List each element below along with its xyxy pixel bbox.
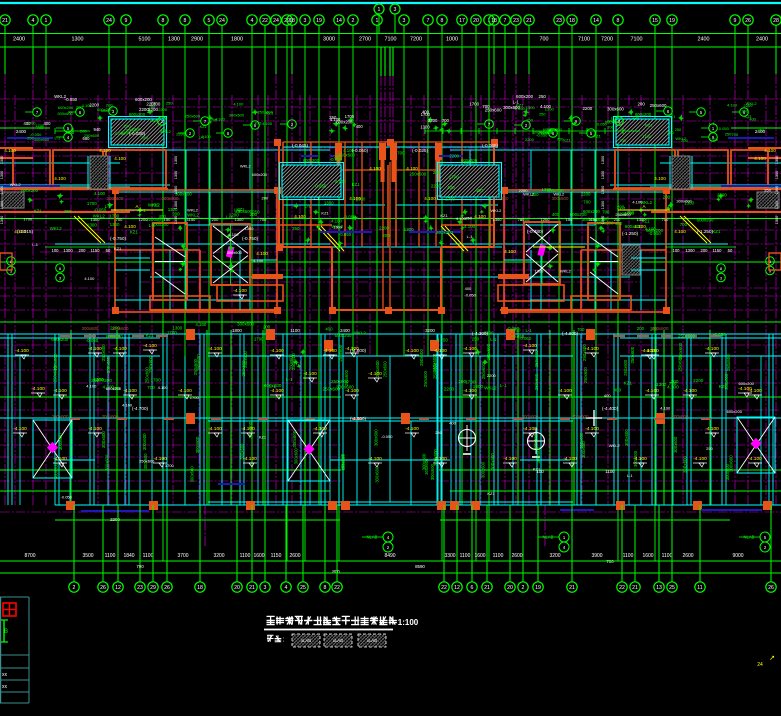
- svg-text:L-1: L-1: [139, 208, 146, 213]
- svg-text:150: 150: [566, 217, 573, 222]
- svg-text:250x600: 250x600: [432, 362, 437, 379]
- svg-text:2600: 2600: [682, 553, 693, 559]
- svg-text:1: 1: [376, 18, 379, 24]
- svg-text:1300: 1300: [775, 216, 779, 224]
- svg-text:2200: 2200: [379, 225, 389, 230]
- svg-text:3: 3: [394, 7, 397, 13]
- svg-text:200: 200: [607, 125, 614, 130]
- svg-text:19: 19: [535, 585, 541, 591]
- svg-text:-4.100: -4.100: [463, 388, 477, 394]
- svg-text:KZ1: KZ1: [130, 230, 139, 235]
- svg-text:300x600: 300x600: [142, 433, 147, 450]
- svg-text:700: 700: [260, 217, 267, 222]
- svg-text:1300: 1300: [87, 223, 97, 228]
- svg-text:600x200: 600x200: [264, 383, 282, 388]
- svg-text:300x600: 300x600: [430, 463, 435, 480]
- svg-text:20: 20: [507, 585, 513, 591]
- svg-text:200: 200: [663, 195, 671, 200]
- svg-text:1300: 1300: [174, 156, 178, 164]
- svg-text:4.100: 4.100: [660, 405, 671, 410]
- svg-text:-4.100: -4.100: [113, 346, 127, 352]
- svg-text:400: 400: [552, 212, 560, 217]
- svg-text:1300: 1300: [72, 37, 84, 43]
- svg-text:1100: 1100: [460, 553, 471, 559]
- svg-text:300x600: 300x600: [227, 250, 243, 255]
- svg-text:19: 19: [316, 18, 322, 24]
- svg-text:400: 400: [24, 121, 32, 126]
- svg-text:1700: 1700: [151, 101, 161, 106]
- svg-text:KZ1: KZ1: [259, 434, 267, 439]
- svg-text:2400: 2400: [16, 129, 27, 134]
- svg-text:1700: 1700: [511, 327, 521, 332]
- svg-text:-0.050: -0.050: [65, 97, 78, 102]
- svg-text:300x600: 300x600: [373, 429, 378, 446]
- svg-text:300x600: 300x600: [492, 196, 509, 201]
- svg-text:600x200: 600x200: [335, 333, 352, 338]
- svg-text:-4.100: -4.100: [233, 288, 247, 294]
- svg-text:4.100: 4.100: [474, 214, 486, 219]
- svg-text:-0.050: -0.050: [713, 332, 726, 337]
- svg-text:1600: 1600: [474, 553, 485, 559]
- svg-text:250x600: 250x600: [486, 343, 491, 360]
- svg-text:1300: 1300: [420, 125, 430, 130]
- svg-text:2600: 2600: [289, 553, 300, 559]
- svg-text:400: 400: [325, 327, 333, 332]
- svg-text:300x600: 300x600: [294, 448, 299, 465]
- svg-text:-4.100: -4.100: [53, 456, 67, 462]
- svg-text:KZ1: KZ1: [624, 381, 633, 386]
- svg-text:1100: 1100: [662, 553, 673, 559]
- svg-text:-4.100: -4.100: [15, 348, 29, 354]
- svg-text:400: 400: [356, 124, 364, 129]
- svg-text:-4.100: -4.100: [31, 386, 45, 392]
- svg-text:600x200: 600x200: [697, 218, 714, 223]
- svg-text:xLAB: xLAB: [367, 638, 377, 643]
- svg-text:200: 200: [104, 378, 112, 383]
- svg-text:11: 11: [697, 585, 702, 591]
- svg-text:250x600: 250x600: [145, 367, 150, 384]
- svg-text:50: 50: [728, 248, 733, 253]
- svg-text:3700: 3700: [177, 553, 188, 559]
- svg-text:600x200: 600x200: [51, 337, 68, 342]
- svg-text:L-1: L-1: [669, 114, 676, 119]
- svg-text:200: 200: [79, 248, 87, 253]
- svg-text:300x600: 300x600: [52, 414, 69, 419]
- svg-text:300x600: 300x600: [58, 433, 63, 450]
- svg-text:3: 3: [264, 585, 267, 591]
- svg-text:1700: 1700: [449, 175, 459, 180]
- svg-text:200: 200: [261, 195, 268, 200]
- svg-text:3900: 3900: [591, 553, 602, 559]
- svg-text:1300: 1300: [174, 201, 178, 209]
- svg-text:2200: 2200: [519, 188, 529, 193]
- svg-text:200: 200: [382, 233, 390, 238]
- svg-text:200: 200: [212, 217, 219, 222]
- svg-text:4.100: 4.100: [215, 117, 226, 122]
- svg-text:26: 26: [100, 585, 106, 591]
- svg-text:700: 700: [397, 150, 405, 155]
- svg-text:250: 250: [539, 112, 546, 117]
- svg-text:3200: 3200: [425, 328, 435, 333]
- svg-text:2400: 2400: [13, 37, 25, 43]
- svg-text:600x200: 600x200: [252, 172, 268, 177]
- svg-text:1840: 1840: [123, 553, 134, 559]
- svg-text:700: 700: [619, 138, 626, 143]
- svg-text:KZ1: KZ1: [563, 137, 571, 142]
- svg-text:700: 700: [662, 217, 669, 222]
- svg-text:18: 18: [197, 585, 203, 591]
- svg-text:xx: xx: [2, 672, 8, 678]
- svg-text:-4.100: -4.100: [405, 348, 419, 354]
- svg-text:4.100: 4.100: [256, 251, 268, 256]
- svg-text:1100: 1100: [623, 553, 634, 559]
- svg-text:400: 400: [422, 109, 430, 114]
- svg-text:250: 250: [27, 135, 34, 140]
- svg-text:KZ1: KZ1: [321, 211, 329, 216]
- svg-text:250x600: 250x600: [289, 353, 294, 370]
- svg-text:xLAB: xLAB: [301, 638, 311, 643]
- svg-text:18: 18: [491, 18, 497, 24]
- svg-text:NLAB: NLAB: [744, 535, 755, 540]
- svg-text:-4.100: -4.100: [368, 456, 382, 462]
- svg-text:18: 18: [289, 18, 295, 24]
- svg-text:300x600: 300x600: [579, 432, 584, 449]
- svg-text:2400: 2400: [756, 37, 768, 43]
- svg-text:400: 400: [44, 121, 52, 126]
- svg-text:400: 400: [67, 130, 74, 135]
- svg-text:2: 2: [522, 585, 525, 591]
- svg-text:2200: 2200: [717, 193, 727, 198]
- svg-text:4.100: 4.100: [122, 403, 133, 408]
- svg-text:-4.100: -4.100: [585, 346, 599, 352]
- svg-text:1700: 1700: [254, 337, 264, 342]
- svg-text:600x200: 600x200: [739, 381, 755, 386]
- svg-text:600x200: 600x200: [516, 94, 533, 99]
- svg-text:-4.100: -4.100: [633, 456, 647, 462]
- svg-text:23: 23: [137, 585, 143, 591]
- svg-text:300x600: 300x600: [572, 414, 589, 419]
- svg-text:1300: 1300: [174, 186, 178, 194]
- svg-text:1100: 1100: [143, 553, 154, 559]
- svg-text:4.100: 4.100: [754, 156, 766, 161]
- svg-text:KZ1: KZ1: [645, 122, 653, 127]
- svg-text:-4.100: -4.100: [153, 456, 167, 462]
- svg-text:(-4.800): (-4.800): [350, 348, 367, 353]
- svg-text:2400: 2400: [698, 37, 710, 43]
- svg-text:250: 250: [141, 135, 148, 140]
- svg-text:4.100: 4.100: [674, 229, 686, 234]
- svg-text:4.100: 4.100: [262, 121, 273, 126]
- svg-text:(-4.300): (-4.300): [472, 331, 489, 336]
- svg-text:700: 700: [557, 136, 564, 141]
- svg-text:2200: 2200: [487, 373, 497, 378]
- svg-text:200: 200: [671, 379, 679, 384]
- svg-text:(-0.045): (-0.045): [292, 143, 309, 148]
- svg-text:250x600: 250x600: [193, 358, 198, 375]
- svg-text:-4.100: -4.100: [693, 456, 707, 462]
- svg-text:300x600: 300x600: [162, 196, 179, 201]
- svg-text:2600: 2600: [511, 553, 522, 559]
- svg-text:20: 20: [473, 18, 479, 24]
- svg-text:250x600: 250x600: [106, 356, 111, 373]
- svg-text:20: 20: [234, 585, 240, 591]
- svg-text:4.100: 4.100: [86, 383, 97, 388]
- svg-text:WKL2: WKL2: [10, 182, 22, 187]
- svg-text:2400: 2400: [340, 328, 350, 333]
- svg-text:9: 9: [734, 18, 737, 24]
- svg-text:250x600: 250x600: [623, 359, 628, 376]
- svg-text:250x600: 250x600: [185, 113, 201, 118]
- svg-text:3200: 3200: [549, 553, 560, 559]
- svg-text:(-0.050): (-0.050): [352, 148, 369, 153]
- svg-text:1100: 1100: [605, 469, 615, 474]
- svg-text:1300: 1300: [493, 217, 503, 222]
- svg-text:300x600: 300x600: [105, 454, 110, 471]
- svg-text:1100: 1100: [240, 553, 251, 559]
- svg-text:-4.100: -4.100: [208, 426, 222, 432]
- svg-text:-4.100: -4.100: [270, 348, 284, 354]
- svg-text:1700: 1700: [87, 201, 97, 206]
- svg-text:14: 14: [593, 18, 599, 24]
- svg-text:4.100: 4.100: [158, 385, 169, 390]
- svg-text:300x600: 300x600: [672, 414, 689, 419]
- svg-text:21: 21: [2, 18, 8, 24]
- svg-text:L-1: L-1: [199, 135, 206, 140]
- svg-text:7: 7: [427, 18, 430, 24]
- svg-text:700: 700: [680, 222, 688, 227]
- svg-text:1300: 1300: [174, 171, 178, 179]
- svg-text:xx: xx: [2, 684, 8, 690]
- svg-text:WKL2: WKL2: [354, 330, 367, 335]
- svg-text:200: 200: [637, 101, 645, 106]
- svg-text:600x200: 600x200: [129, 112, 146, 117]
- svg-text:-0.050: -0.050: [114, 131, 126, 136]
- svg-text:-4.100: -4.100: [748, 456, 762, 462]
- svg-text:200: 200: [637, 326, 645, 331]
- svg-text:-4.100: -4.100: [123, 388, 137, 394]
- svg-text:21: 21: [632, 585, 638, 591]
- svg-text:KZ1: KZ1: [266, 110, 274, 115]
- svg-text:300x600: 300x600: [195, 436, 200, 453]
- svg-text:26: 26: [768, 585, 774, 591]
- svg-text:23: 23: [513, 18, 519, 24]
- svg-text:7200: 7200: [410, 37, 422, 43]
- svg-text:200: 200: [263, 325, 271, 330]
- svg-text:250: 250: [166, 101, 173, 106]
- svg-text:200: 200: [614, 217, 621, 222]
- svg-text:700: 700: [442, 118, 450, 123]
- svg-text:2200: 2200: [581, 191, 591, 196]
- svg-text:300x600: 300x600: [552, 196, 569, 201]
- svg-text:300x600: 300x600: [424, 458, 429, 475]
- svg-text:250x600: 250x600: [650, 103, 667, 108]
- svg-text:300x600: 300x600: [229, 113, 245, 118]
- svg-text:-4.100: -4.100: [523, 426, 537, 432]
- svg-text:2200: 2200: [693, 378, 704, 383]
- svg-text:4.100: 4.100: [504, 249, 516, 254]
- svg-text:400: 400: [449, 421, 456, 426]
- svg-text:L-1: L-1: [611, 116, 618, 121]
- svg-text:L-1: L-1: [286, 377, 293, 382]
- svg-text:4.100: 4.100: [99, 148, 111, 153]
- svg-text:2: 2: [73, 585, 76, 591]
- svg-text:250: 250: [764, 187, 771, 192]
- svg-text:700: 700: [518, 217, 525, 222]
- svg-text:200: 200: [681, 138, 688, 143]
- svg-text:400: 400: [613, 387, 621, 392]
- svg-text:L-1: L-1: [627, 473, 634, 478]
- svg-text:1150: 1150: [187, 217, 196, 222]
- svg-text:300x600: 300x600: [490, 453, 495, 470]
- svg-text:9: 9: [125, 18, 128, 24]
- svg-text:1700: 1700: [23, 217, 33, 222]
- svg-text:24: 24: [757, 662, 763, 668]
- svg-text:1300: 1300: [709, 137, 719, 142]
- svg-text:8490: 8490: [384, 553, 395, 559]
- svg-text:-0.050: -0.050: [512, 334, 525, 339]
- svg-text:8700: 8700: [24, 553, 35, 559]
- svg-text:(-0.045): (-0.045): [482, 143, 499, 148]
- svg-text:1300: 1300: [775, 201, 779, 209]
- svg-text:-4.100: -4.100: [241, 426, 255, 432]
- svg-text:250x600: 250x600: [630, 346, 635, 363]
- svg-text:WKL2: WKL2: [50, 226, 63, 231]
- svg-text:250: 250: [741, 109, 748, 114]
- svg-text:-4.100: -4.100: [405, 426, 419, 432]
- svg-text:2200: 2200: [148, 107, 158, 112]
- svg-text:WKL2: WKL2: [187, 207, 199, 212]
- svg-text:KZ1: KZ1: [533, 467, 541, 472]
- svg-text:600x200: 600x200: [106, 334, 123, 339]
- svg-text:250x600: 250x600: [139, 458, 155, 463]
- svg-text:4: 4: [251, 18, 254, 24]
- svg-text:1300: 1300: [601, 156, 605, 164]
- svg-text:250: 250: [252, 209, 260, 214]
- svg-text:940: 940: [94, 127, 102, 132]
- svg-text:250: 250: [667, 130, 674, 135]
- svg-text:(-1.250): (-1.250): [622, 231, 639, 236]
- svg-text:KZ1: KZ1: [146, 333, 155, 338]
- svg-text:-0.050: -0.050: [381, 434, 393, 439]
- svg-text:L-1: L-1: [54, 136, 61, 141]
- svg-text:2200: 2200: [431, 183, 441, 188]
- svg-text:250x600: 250x600: [338, 344, 343, 361]
- svg-text:23: 23: [556, 18, 562, 24]
- svg-text:L-1: L-1: [709, 121, 716, 126]
- svg-text:4.100: 4.100: [195, 322, 207, 327]
- svg-text:250x600: 250x600: [409, 172, 426, 177]
- svg-text:1300: 1300: [110, 222, 120, 227]
- svg-text:1300: 1300: [63, 248, 73, 253]
- svg-text:1: 1: [378, 7, 381, 13]
- svg-text:-4.100: -4.100: [53, 388, 67, 394]
- svg-text:1300: 1300: [601, 216, 605, 224]
- svg-text:2200: 2200: [428, 118, 438, 123]
- svg-text:200: 200: [433, 170, 441, 175]
- svg-text:xLAB: xLAB: [333, 638, 343, 643]
- svg-text:1700: 1700: [469, 101, 479, 106]
- svg-text:-0.050: -0.050: [94, 207, 107, 212]
- svg-text:300x600: 300x600: [82, 326, 99, 331]
- svg-text:600x200: 600x200: [106, 386, 122, 391]
- svg-text:300x600: 300x600: [57, 111, 73, 116]
- svg-text:2200: 2200: [464, 160, 474, 165]
- svg-text:NLAB: NLAB: [543, 535, 554, 540]
- svg-text:300x600: 300x600: [341, 454, 346, 471]
- svg-text:A: A: [642, 204, 645, 209]
- svg-text:-0.050: -0.050: [339, 232, 352, 237]
- svg-text:1700: 1700: [642, 134, 652, 139]
- svg-text:24: 24: [106, 18, 112, 24]
- svg-text:WKL2: WKL2: [491, 208, 503, 213]
- svg-text:1150: 1150: [712, 248, 722, 253]
- svg-text:3: 3: [403, 18, 406, 24]
- svg-text:250x600: 250x600: [726, 354, 731, 371]
- svg-text:26: 26: [745, 18, 751, 24]
- svg-text:1700: 1700: [150, 378, 161, 383]
- svg-text::: :: [283, 637, 285, 644]
- svg-text:9000: 9000: [732, 553, 743, 559]
- svg-text:(-4.500): (-4.500): [350, 416, 367, 421]
- svg-text:-4.100: -4.100: [88, 346, 102, 352]
- svg-text:24: 24: [273, 18, 279, 24]
- svg-text:KZ1: KZ1: [440, 213, 448, 218]
- svg-text:250x600: 250x600: [678, 355, 683, 372]
- svg-text:6: 6: [471, 585, 474, 591]
- svg-text:L-1: L-1: [32, 242, 39, 247]
- svg-text:2200: 2200: [525, 137, 535, 142]
- svg-text:-4.100: -4.100: [433, 456, 447, 462]
- svg-text:21: 21: [526, 18, 532, 24]
- svg-text:WKL2: WKL2: [160, 129, 172, 134]
- svg-text:-0.050: -0.050: [465, 292, 477, 297]
- svg-text:-0.050: -0.050: [435, 338, 448, 343]
- svg-text:1600: 1600: [253, 553, 264, 559]
- svg-text:L-1: L-1: [305, 204, 312, 209]
- svg-text:3300: 3300: [444, 553, 455, 559]
- svg-text:WKL2: WKL2: [148, 202, 161, 207]
- svg-text:4.100: 4.100: [464, 224, 476, 229]
- svg-text:1300: 1300: [0, 186, 4, 194]
- svg-text:1300: 1300: [526, 105, 536, 110]
- svg-text:4.100: 4.100: [228, 232, 239, 237]
- svg-text:2200: 2200: [158, 107, 168, 112]
- svg-text:250x600: 250x600: [615, 212, 631, 217]
- svg-text:400: 400: [604, 393, 611, 398]
- svg-text:250x600: 250x600: [678, 334, 695, 339]
- svg-text:700: 700: [116, 217, 123, 222]
- svg-text:(-1.250): (-1.250): [697, 229, 714, 234]
- svg-text:13: 13: [656, 585, 662, 591]
- svg-text:4.100: 4.100: [634, 224, 646, 229]
- svg-text:400: 400: [749, 116, 756, 121]
- svg-text:4.100: 4.100: [124, 224, 136, 229]
- svg-text:600x200: 600x200: [135, 97, 152, 102]
- svg-text:21: 21: [569, 585, 575, 591]
- svg-text:300x600: 300x600: [683, 456, 688, 473]
- svg-text:300x600: 300x600: [673, 436, 678, 453]
- svg-text:600x200: 600x200: [583, 209, 600, 214]
- svg-text:28: 28: [773, 18, 779, 24]
- svg-text:(-0.750): (-0.750): [110, 236, 127, 241]
- svg-text:250x600: 250x600: [419, 348, 424, 365]
- svg-text:300x600: 300x600: [112, 326, 129, 331]
- svg-text:250: 250: [758, 127, 765, 132]
- svg-text:-4.100: -4.100: [523, 343, 537, 349]
- svg-text:1200: 1200: [541, 217, 551, 222]
- svg-text:1300: 1300: [168, 37, 180, 43]
- svg-text:1300: 1300: [685, 248, 695, 253]
